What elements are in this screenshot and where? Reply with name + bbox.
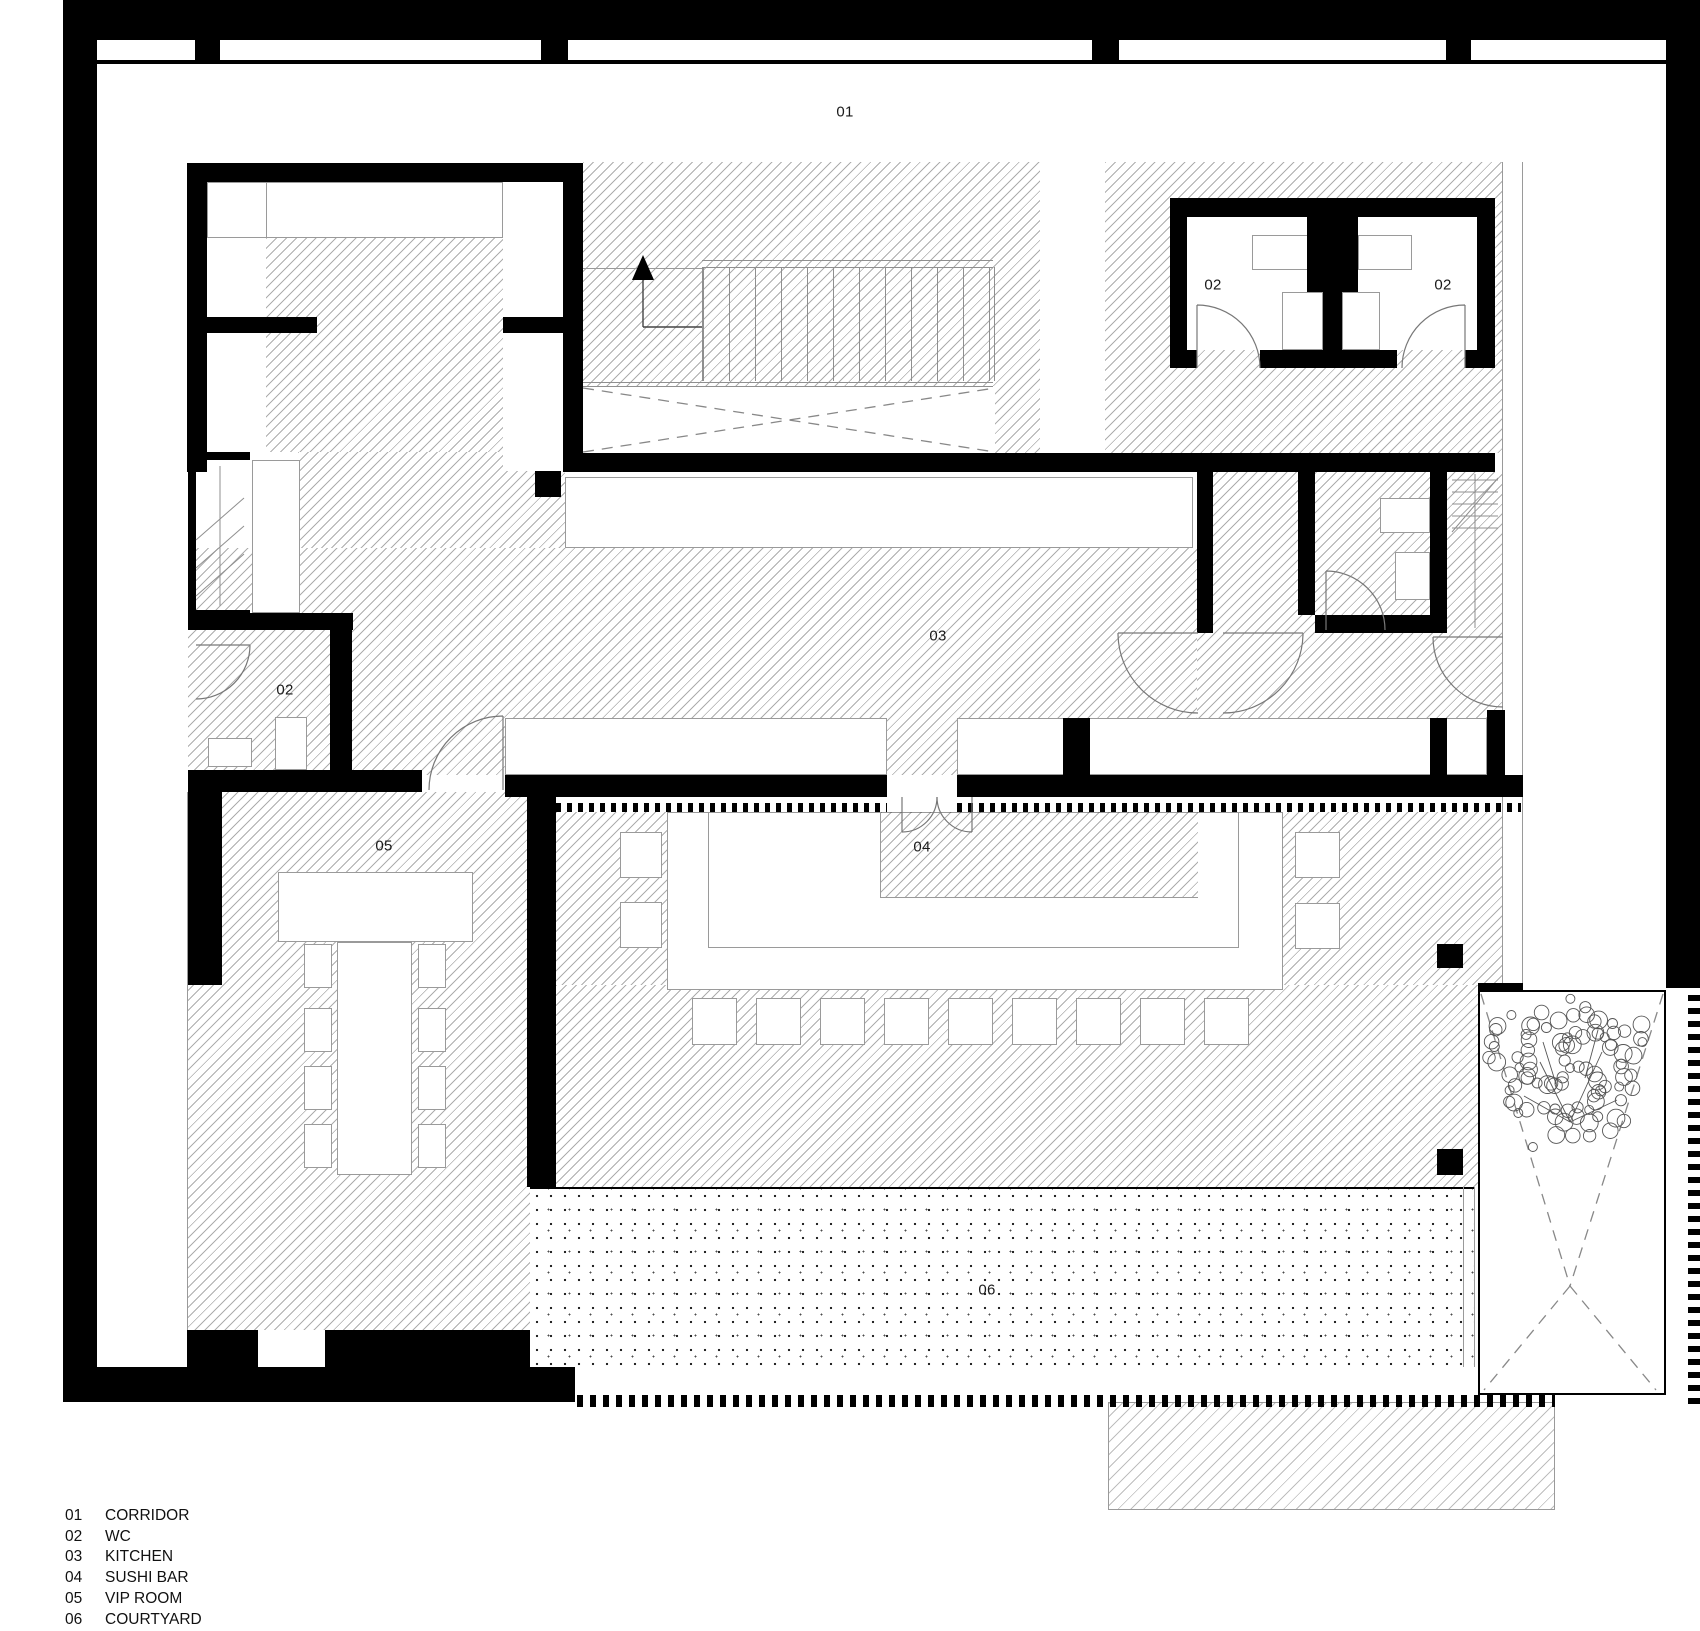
room-label-kitchen: 03	[929, 628, 946, 645]
room-label-wc-top-left: 02	[1204, 277, 1221, 294]
exterior-wall-top	[63, 0, 1700, 40]
stool	[948, 998, 993, 1045]
terrace-hatch	[1108, 1402, 1555, 1510]
stool	[884, 998, 929, 1045]
vip-table	[337, 942, 412, 1175]
legend-label: KITCHEN	[105, 1547, 173, 1568]
sushi-partition-track	[556, 803, 887, 812]
wall	[1430, 472, 1447, 633]
stool	[692, 998, 737, 1045]
legend-number: 05	[65, 1589, 105, 1610]
legend-row: 05 VIP ROOM	[65, 1589, 202, 1610]
vip-chair	[418, 1008, 446, 1052]
hall-floor-hatch	[266, 238, 503, 452]
shaft-wall	[188, 452, 196, 618]
wall	[330, 630, 352, 770]
legend-label: VIP ROOM	[105, 1589, 182, 1610]
storage-room	[207, 333, 266, 452]
room-label-wc-left: 02	[276, 682, 293, 699]
wc-block-wall	[1477, 198, 1495, 368]
kitchen-south-counter	[957, 718, 1487, 775]
wall-stub	[1197, 472, 1213, 633]
room-label-courtyard: 06	[978, 1282, 995, 1299]
legend-label: SUSHI BAR	[105, 1568, 189, 1589]
column	[535, 471, 561, 497]
window-pier	[541, 40, 568, 62]
wall-pier	[1430, 718, 1447, 775]
exterior-wall-left	[63, 0, 97, 1402]
legend-row: 06 COURTYARD	[65, 1610, 202, 1631]
shaft-wall	[188, 452, 250, 460]
stair-void-landing	[583, 386, 995, 455]
courtyard-gravel	[530, 1187, 1475, 1367]
vip-chair	[304, 1124, 332, 1168]
wall-stub	[1478, 983, 1523, 992]
legend-number: 04	[65, 1568, 105, 1589]
wc-fixture	[275, 717, 307, 770]
legend-number: 03	[65, 1547, 105, 1568]
wall	[187, 163, 583, 182]
exterior-wall-right	[1666, 0, 1700, 988]
wc-fixture	[208, 738, 252, 767]
vip-chair	[418, 1124, 446, 1168]
wc-sink	[1358, 235, 1412, 270]
wardrobe-counter	[207, 182, 503, 238]
storage-room	[207, 238, 266, 317]
wc-divider	[1307, 217, 1358, 292]
column	[1437, 944, 1463, 968]
legend-number: 01	[65, 1506, 105, 1527]
vip-chair	[304, 1008, 332, 1052]
vip-sideboard	[278, 872, 473, 942]
closet	[252, 460, 300, 613]
wall-stub	[1487, 710, 1505, 775]
legend-row: 03 KITCHEN	[65, 1547, 202, 1568]
stool	[1140, 998, 1185, 1045]
vip-chair	[304, 1066, 332, 1110]
column	[1437, 1149, 1463, 1175]
kitchen-south-counter	[505, 718, 887, 775]
legend-row: 01 CORRIDOR	[65, 1506, 202, 1527]
kitchen-north-wall	[565, 453, 1495, 472]
room-label-wc-top-right: 02	[1434, 277, 1451, 294]
stair-bottom-rail	[583, 382, 993, 387]
legend-label: COURTYARD	[105, 1610, 202, 1631]
wc-toilet	[1282, 292, 1323, 350]
legend-row: 02 WC	[65, 1527, 202, 1548]
service-zone-floor-hatch	[1197, 472, 1502, 718]
wc-block-wall	[1170, 350, 1197, 368]
wardrobe-divider-line	[266, 182, 267, 238]
wall-stub	[503, 317, 563, 333]
wall-pier	[1063, 718, 1090, 775]
wc-block-wall	[1465, 350, 1495, 368]
wc-block-wall	[1170, 198, 1187, 368]
wall	[1298, 472, 1315, 615]
counter-edge-line	[708, 812, 709, 947]
stool	[1076, 998, 1121, 1045]
wall	[527, 792, 556, 1187]
wc-sink	[1252, 235, 1308, 270]
stool	[756, 998, 801, 1045]
wall-stub	[187, 1330, 258, 1367]
stool	[620, 902, 662, 948]
kitchen-south-wall	[957, 775, 1523, 797]
floor-plan-sheet: 01 02 02 02 03 04 05 06 01 CORRIDOR 02 W…	[0, 0, 1700, 1631]
vip-chair	[418, 1066, 446, 1110]
kitchen-south-wall	[505, 775, 887, 797]
wc-divider	[1323, 292, 1342, 350]
service-fixture	[1395, 552, 1430, 600]
exterior-wall-bottom	[63, 1367, 575, 1402]
vip-chair	[418, 944, 446, 988]
wall	[188, 770, 222, 985]
stool	[620, 832, 662, 878]
wall	[188, 613, 353, 630]
stair-lead-line	[583, 268, 702, 269]
wc-block-wall	[1260, 350, 1397, 368]
stool	[1204, 998, 1249, 1045]
legend-number: 02	[65, 1527, 105, 1548]
counter-edge-line	[1238, 812, 1239, 947]
facade-edge-strip	[1502, 162, 1523, 985]
window-pier	[1446, 40, 1471, 62]
window-pier	[195, 40, 220, 62]
vip-chair	[304, 944, 332, 988]
legend-label: WC	[105, 1527, 131, 1548]
site-boundary-dashes	[577, 1395, 1555, 1407]
wall	[563, 163, 583, 472]
courtyard-edge-line	[1463, 1187, 1475, 1367]
stool	[820, 998, 865, 1045]
site-boundary-dashes	[1688, 995, 1700, 1408]
counter-edge-line	[708, 947, 1239, 948]
stool	[1012, 998, 1057, 1045]
room-label-sushi-bar: 04	[913, 839, 930, 856]
wall	[1315, 615, 1447, 633]
wc-block-wall	[1170, 198, 1495, 217]
wc-toilet	[1342, 292, 1380, 350]
wall	[188, 770, 422, 792]
corridor-gap	[1040, 162, 1105, 453]
wall-stub	[325, 1330, 530, 1367]
sushi-partition-track	[957, 803, 1521, 812]
window-pier	[1092, 40, 1119, 62]
room-label-corridor: 01	[836, 104, 853, 121]
legend-row: 04 SUSHI BAR	[65, 1568, 202, 1589]
stool	[1295, 903, 1340, 949]
kitchen-north-counter	[565, 477, 1193, 548]
stool	[1295, 832, 1340, 878]
legend-label: CORRIDOR	[105, 1506, 189, 1527]
legend: 01 CORRIDOR 02 WC 03 KITCHEN 04 SUSHI BA…	[65, 1506, 202, 1630]
stair-treads	[702, 267, 995, 381]
wall	[187, 163, 207, 472]
service-fixture	[1380, 498, 1430, 533]
wall-stub	[207, 317, 317, 333]
legend-number: 06	[65, 1610, 105, 1631]
tree-planter-box	[1478, 990, 1666, 1395]
window-sill-line	[63, 60, 1700, 64]
room-label-vip-room: 05	[375, 838, 392, 855]
